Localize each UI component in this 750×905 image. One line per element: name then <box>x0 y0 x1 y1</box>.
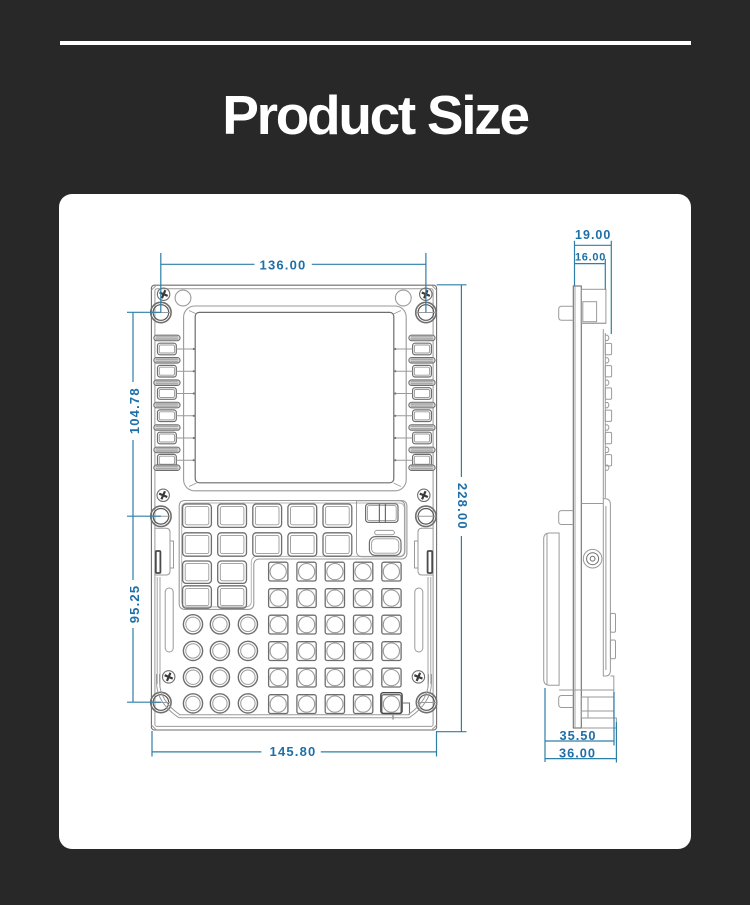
svg-text:145.80: 145.80 <box>270 744 317 759</box>
svg-text:95.25: 95.25 <box>127 585 142 624</box>
svg-text:104.78: 104.78 <box>127 387 142 434</box>
svg-text:228.00: 228.00 <box>455 483 470 530</box>
svg-text:35.50: 35.50 <box>559 728 596 743</box>
svg-text:36.00: 36.00 <box>559 745 596 760</box>
svg-text:19.00: 19.00 <box>575 228 611 242</box>
svg-text:136.00: 136.00 <box>260 257 307 272</box>
svg-text:16.00: 16.00 <box>575 252 606 264</box>
